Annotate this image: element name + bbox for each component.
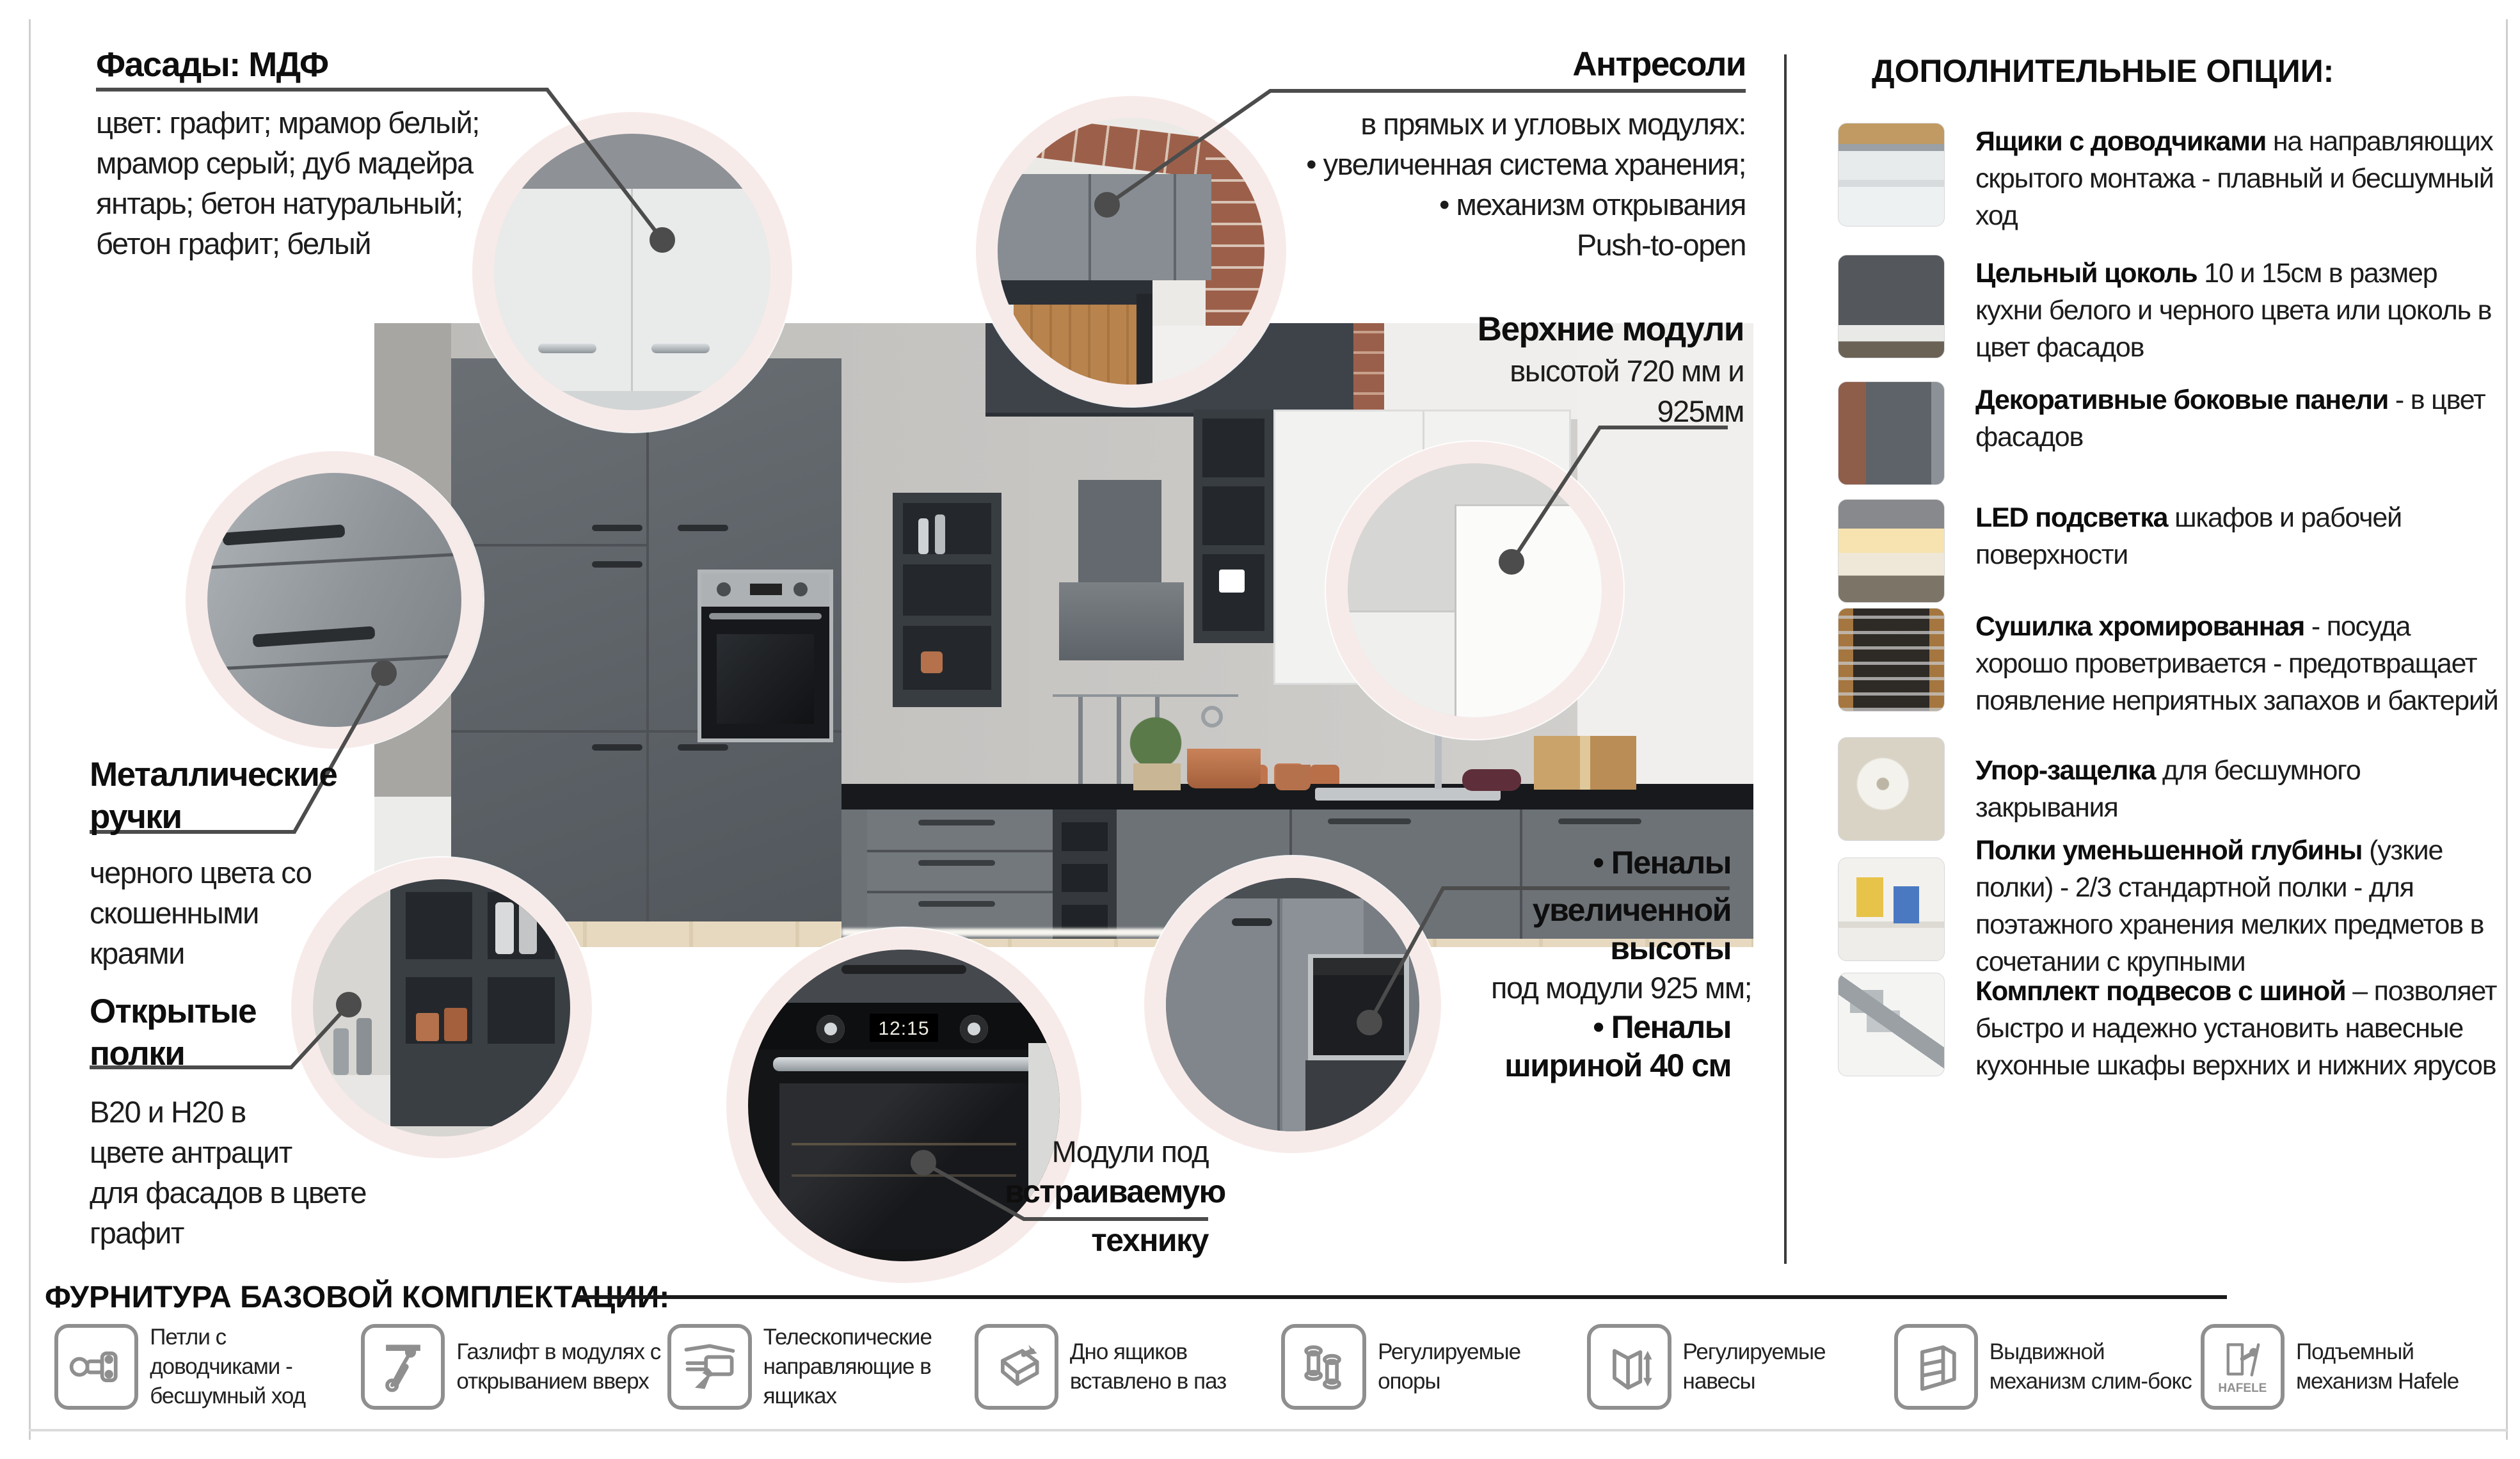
gas-lift-icon <box>372 1336 434 1398</box>
upper-modules-title: Верхние модули <box>1424 308 1744 351</box>
hardware-label: Газлифт в модулях с открыванием вверх <box>456 1337 667 1396</box>
penals-annotation: • Пеналы увеличенной высоты под модули 9… <box>1491 843 1731 1085</box>
mezzanine-line: в прямых и угловых модулях: <box>1267 104 1746 144</box>
adjustable-hangers-icon <box>1599 1336 1660 1398</box>
hardware-item: Дно ящиков вставлено в паз <box>975 1316 1281 1418</box>
mezzanine-annotation: Антресоли в прямых и угловых модулях: • … <box>1267 44 1746 265</box>
hardware-item: Выдвижной механизм слим-бокс <box>1894 1316 2201 1418</box>
hardware-item: Регулируемые навесы <box>1587 1316 1894 1418</box>
hardware-label: Петли с доводчиками - бесшумный ход <box>150 1323 361 1411</box>
open-shelves-title: Открытые полки <box>90 991 422 1075</box>
hardware-label: Дно ящиков вставлено в паз <box>1070 1337 1281 1396</box>
facades-annotation: Фасады: МДФ цвет: графит; мрамор белый; … <box>96 44 557 264</box>
upper-modules-annotation: Верхние модули высотой 720 мм и 925мм <box>1424 308 1744 431</box>
hardware-row: Петли с доводчиками - бесшумный ход Газл… <box>54 1316 2507 1418</box>
hardware-label: Регулируемые навесы <box>1683 1337 1894 1396</box>
handles-annotation: Металлические ручки черного цвета со ско… <box>90 754 384 973</box>
upper-modules-line: 925мм <box>1424 391 1744 431</box>
builtin-line-bold: технику <box>1005 1220 1208 1260</box>
facades-line: мрамор серый; дуб мадейра <box>96 143 557 183</box>
facades-line: янтарь; бетон натуральный; <box>96 183 557 223</box>
builtin-line: Модули под <box>1005 1131 1208 1172</box>
open-shelves-line: для фасадов в цвете <box>90 1172 422 1213</box>
hafele-badge: HAFELE <box>2218 1382 2267 1396</box>
drawer-bottom-icon <box>985 1336 1047 1398</box>
penals-line: под модули 925 мм; <box>1491 968 1731 1008</box>
open-shelves-line: графит <box>90 1213 422 1253</box>
penals-line-bold: • Пеналы <box>1491 1008 1731 1046</box>
hardware-item: Петли с доводчиками - бесшумный ход <box>54 1316 361 1418</box>
hardware-label: Регулируемые опоры <box>1378 1337 1587 1396</box>
hardware-label: Подъемный механизм Hafele <box>2296 1337 2507 1396</box>
open-shelves-annotation: Открытые полки В20 и Н20 в цвете антраци… <box>90 991 422 1253</box>
penals-line-bold: шириной 40 см <box>1491 1046 1731 1085</box>
facades-line: бетон графит; белый <box>96 223 557 264</box>
hardware-item: Газлифт в модулях с открыванием вверх <box>361 1316 667 1418</box>
mezzanine-title: Антресоли <box>1267 44 1746 86</box>
hardware-item: Телескопические направляющие в ящиках <box>667 1316 974 1418</box>
hardware-label: Выдвижной механизм слим-бокс <box>1990 1337 2201 1396</box>
hardware-item: Регулируемые опоры <box>1281 1316 1588 1418</box>
penals-line-bold: • Пеналы <box>1491 843 1731 882</box>
handles-line: черного цвета со <box>90 852 384 893</box>
mezzanine-line: • увеличенная система хранения; <box>1267 144 1746 184</box>
facades-line: цвет: графит; мрамор белый; <box>96 102 557 143</box>
handles-line: краями <box>90 933 384 973</box>
open-shelves-line: цвете антрацит <box>90 1132 422 1172</box>
upper-modules-line: высотой 720 мм и <box>1424 351 1744 391</box>
kitchen-brochure-page: { "page": {"accent_line_color": "#4c4c4c… <box>0 0 2520 1459</box>
builtin-annotation: Модули под встраиваемую технику <box>1005 1131 1208 1260</box>
builtin-line-bold: встраиваемую <box>1005 1172 1208 1211</box>
hardware-label: Телескопические направляющие в ящиках <box>763 1323 975 1411</box>
handles-line: скошенными <box>90 893 384 933</box>
hardware-item: HAFELE Подъемный механизм Hafele <box>2201 1316 2507 1418</box>
hafele-lift-icon <box>2219 1338 2266 1385</box>
facades-title: Фасады: МДФ <box>96 44 557 86</box>
adjustable-feet-icon <box>1293 1336 1354 1398</box>
penals-line-bold: увеличенной <box>1491 891 1731 929</box>
slim-box-icon <box>1905 1336 1966 1398</box>
telescopic-slides-icon <box>679 1336 740 1398</box>
hinge-icon <box>66 1336 127 1398</box>
open-shelves-line: В20 и Н20 в <box>90 1092 422 1132</box>
handles-title: Металлические ручки <box>90 754 384 838</box>
mezzanine-line: • механизм открывания <box>1267 184 1746 225</box>
penals-line-bold: высоты <box>1491 929 1731 968</box>
mezzanine-line: Push-to-open <box>1267 225 1746 265</box>
